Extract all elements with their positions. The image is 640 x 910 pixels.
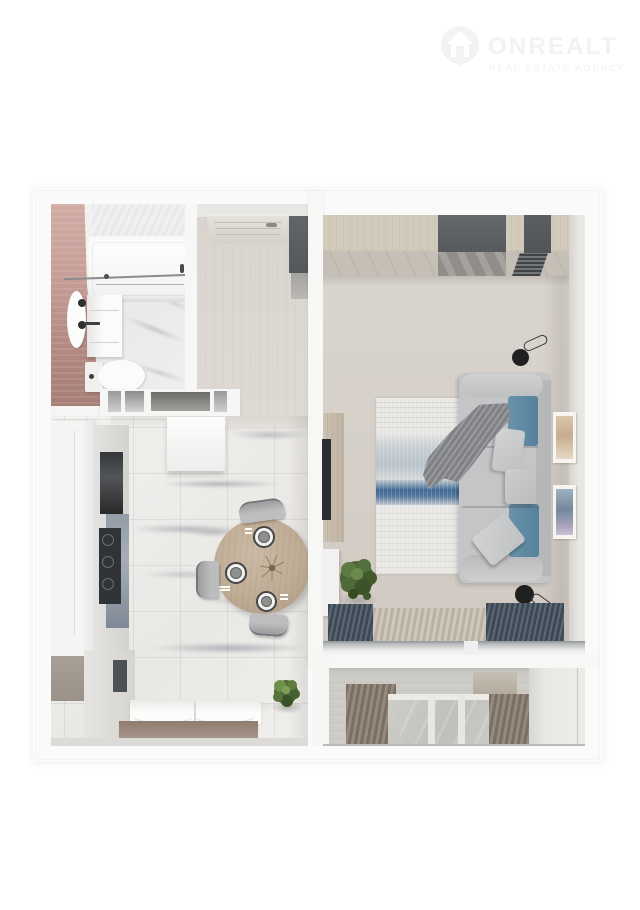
svg-text:ONREALT: ONREALT	[488, 33, 618, 60]
svg-text:REAL ESTATE AGENCY: REAL ESTATE AGENCY	[489, 63, 625, 74]
